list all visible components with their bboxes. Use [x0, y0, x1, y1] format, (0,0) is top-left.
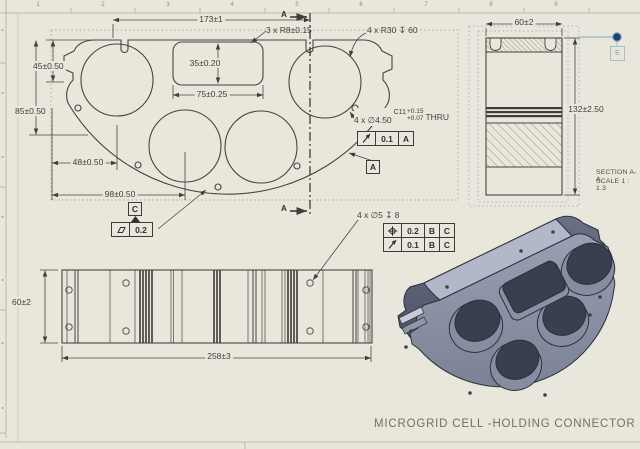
- fcf-tolerance: 0.1: [375, 132, 398, 145]
- zone-number: 2: [101, 2, 104, 8]
- drawing-title: MICROGRID CELL -HOLDING CONNECTOR: [374, 418, 636, 430]
- runout-icon: [358, 132, 375, 145]
- note-r30: 4 x R30 ↧ 60: [367, 25, 418, 35]
- zone-number: 6: [359, 2, 362, 8]
- fcf-row-position: 0.2 B C: [384, 224, 454, 237]
- fcf-datum: B: [424, 224, 439, 237]
- zone-number: 7: [424, 2, 427, 8]
- section-scale: SCALE 1 : 1.3: [596, 178, 640, 192]
- fcf-datum: C: [439, 238, 454, 251]
- dim-48: 48±0.50: [71, 157, 106, 167]
- section-part: [486, 38, 562, 195]
- fcf-datum: B: [424, 238, 439, 251]
- fit-class: C11: [394, 109, 406, 116]
- dim-35: 35±0.20: [188, 58, 223, 68]
- datum-a-flag: A: [366, 160, 380, 174]
- position-icon: [384, 224, 401, 237]
- hole-qty: 4 x ∅4.50: [354, 115, 392, 126]
- runout-icon: [384, 238, 401, 251]
- thru-label: THRU: [425, 112, 449, 122]
- balloon-note: E: [610, 46, 625, 61]
- dim-98: 98±0.50: [103, 189, 138, 199]
- section-line-a-a: [290, 13, 310, 216]
- dim-45: 45±0.50: [31, 61, 66, 71]
- datum-c-flag: C: [128, 202, 142, 216]
- dim-85: 85±0.50: [13, 106, 48, 116]
- zone-number: 5: [295, 2, 298, 8]
- main-view-dimension-lines: [29, 20, 310, 200]
- fcf-flatness: 0.2: [111, 222, 153, 237]
- flatness-icon: [112, 223, 129, 236]
- dim-75: 75±0.25: [195, 89, 230, 99]
- drawing-sheet: 1 2 3 4 5 6 7 8 9 173±1 3 x R8±0.15 4 x …: [0, 0, 640, 449]
- tol-upper: +0.15: [407, 108, 423, 115]
- zone-number: 3: [166, 2, 169, 8]
- dim-60-side: 60±2: [10, 297, 33, 307]
- dim-60-section: 60±2: [513, 17, 536, 27]
- fcf-runout-a: 0.1 A: [357, 131, 414, 146]
- annotation-balloon: [580, 33, 621, 46]
- section-arrow-label-top: A: [281, 10, 287, 19]
- fcf-tolerance: 0.2: [401, 224, 424, 237]
- zone-number: 9: [554, 2, 557, 8]
- zone-number: 8: [489, 2, 492, 8]
- hole-callout-d450: 4 x ∅4.50 C11 +0.15 +0.07 THRU: [354, 108, 449, 126]
- section-arrow-label-bottom: A: [281, 204, 287, 213]
- part-outline: [64, 40, 392, 194]
- fcf-table-d5: 0.2 B C 0.1 B C: [383, 223, 455, 252]
- fcf-row-runout: 0.1 B C: [384, 237, 454, 251]
- zone-letter-dots: [2, 29, 4, 409]
- fcf-tolerance: 0.1: [401, 238, 424, 251]
- fcf-datum: A: [398, 132, 413, 145]
- dim-132: 132±2.50: [566, 104, 605, 114]
- note-r8: 3 x R8±0.15: [266, 25, 312, 35]
- fcf-datum: C: [439, 224, 454, 237]
- main-view-leaders: [131, 31, 373, 229]
- side-view[interactable]: [40, 220, 372, 362]
- side-view-dimension-lines: [40, 220, 371, 362]
- drawing-linework: [0, 0, 640, 449]
- fcf-tolerance: 0.2: [129, 223, 152, 236]
- dim-173: 173±1: [197, 14, 225, 24]
- side-part-edges: [67, 270, 370, 343]
- tol-lower: +0.07: [407, 115, 423, 122]
- dim-258: 258±3: [205, 351, 233, 361]
- zone-number: 4: [230, 2, 233, 8]
- hole-callout-d5: 4 x ∅5 ↧ 8: [357, 210, 399, 220]
- zone-number: 1: [36, 2, 39, 8]
